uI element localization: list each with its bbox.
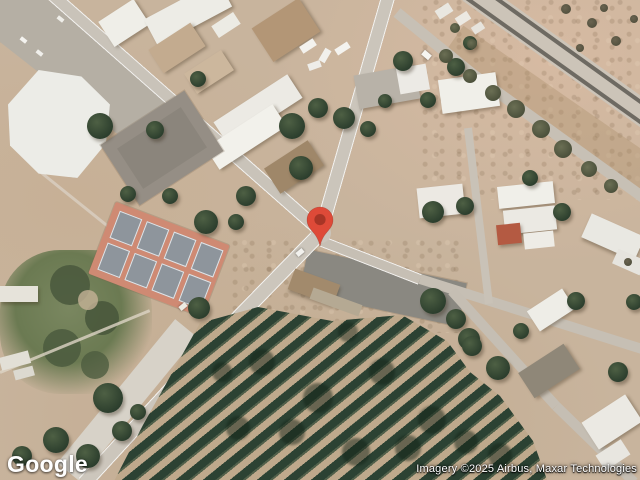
tree (93, 383, 123, 413)
orchard-canopy (249, 349, 275, 375)
orchard-canopy (226, 416, 250, 440)
tennis-court (164, 232, 197, 268)
google-logo[interactable]: Google (7, 451, 88, 478)
orchard-canopy (369, 359, 395, 385)
orchard-canopy (395, 435, 421, 461)
bush (532, 120, 550, 138)
pin-inner-dot (314, 214, 325, 225)
shrub (587, 18, 597, 28)
tree (378, 94, 392, 108)
tree (289, 156, 313, 180)
tree (279, 113, 305, 139)
bush (467, 39, 477, 49)
tree (393, 51, 413, 71)
tree (553, 203, 571, 221)
house-red-roof (496, 223, 522, 245)
bush (450, 23, 460, 33)
bush (463, 69, 477, 83)
tree (43, 427, 69, 453)
tree (333, 107, 355, 129)
tree (112, 421, 132, 441)
tree (420, 288, 446, 314)
bush (554, 140, 572, 158)
shrub (561, 4, 571, 14)
tree (190, 71, 206, 87)
tennis-court (124, 253, 157, 289)
tree (522, 170, 538, 186)
tree (120, 186, 136, 202)
tennis-court (191, 242, 224, 278)
orchard-canopy (418, 406, 446, 434)
orchard-canopy (212, 362, 232, 382)
tree (420, 92, 436, 108)
pin-body (307, 207, 333, 246)
bush (485, 85, 501, 101)
tree (308, 98, 328, 118)
tree (87, 113, 113, 139)
tennis-court (109, 211, 142, 247)
orchard-canopy (338, 322, 358, 342)
tree (228, 214, 244, 230)
tree (146, 121, 164, 139)
field-tree-clump (81, 351, 109, 379)
tree (456, 197, 474, 215)
bush (507, 100, 525, 118)
tree (486, 356, 510, 380)
building-white (523, 230, 555, 249)
bush (439, 49, 453, 63)
tennis-court (151, 263, 184, 299)
tree (608, 362, 628, 382)
tennis-court (97, 242, 130, 278)
tree (188, 297, 210, 319)
bush (604, 179, 618, 193)
shrub (611, 36, 621, 46)
tree (446, 309, 466, 329)
shed-white (0, 286, 38, 302)
shrub (630, 15, 638, 23)
tree (513, 323, 529, 339)
bush (581, 161, 597, 177)
shrub (624, 258, 632, 266)
tree (462, 336, 482, 356)
tree (422, 201, 444, 223)
orchard-canopy (342, 438, 370, 466)
tree (567, 292, 585, 310)
tree (194, 210, 218, 234)
orchard-canopy (279, 419, 305, 445)
tennis-court (137, 221, 170, 257)
tree (236, 186, 256, 206)
orchard-canopy (454, 430, 478, 454)
tree (360, 121, 376, 137)
tree (162, 188, 178, 204)
orchard-canopy (303, 383, 333, 413)
tree (626, 294, 640, 310)
field-bare-patch (78, 290, 98, 310)
imagery-attribution: Imagery ©2025 Airbus, Maxar Technologies (416, 463, 637, 475)
shrub (576, 44, 584, 52)
map-viewport[interactable]: Google Imagery ©2025 Airbus, Maxar Techn… (0, 0, 640, 480)
shrub (600, 4, 608, 12)
location-pin-icon[interactable] (306, 206, 334, 247)
tree (130, 404, 146, 420)
